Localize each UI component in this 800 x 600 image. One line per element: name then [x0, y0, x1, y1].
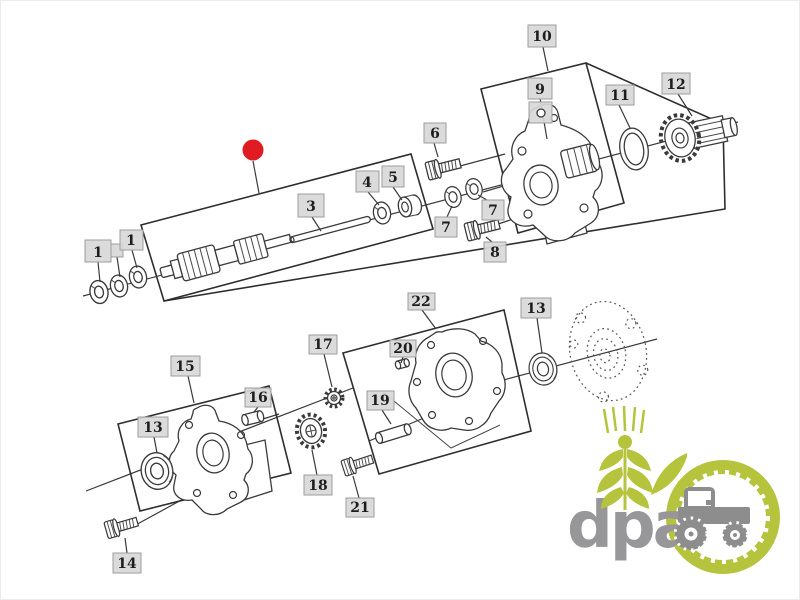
logo-text: dpa: [567, 489, 693, 563]
selected-part-marker: [243, 140, 264, 194]
pump-housing-10: [501, 104, 602, 244]
callout-19: 19: [367, 391, 394, 424]
svg-text:15: 15: [175, 359, 194, 375]
red-dot-icon: [243, 140, 264, 161]
callout-7b: 7: [478, 195, 504, 220]
bolt-14: [104, 513, 140, 539]
svg-text:21: 21: [350, 500, 369, 516]
dpa-logo: dpa: [567, 406, 773, 567]
bearing-13-right: [526, 350, 560, 387]
svg-text:14: 14: [117, 556, 137, 572]
callout-1b: 1: [120, 230, 143, 268]
parts-diagram-page: 1 1 3 4 5 6: [0, 0, 800, 600]
pin-19: [374, 423, 412, 444]
exploded-parts-diagram: 1 1 3 4 5 6: [1, 1, 800, 600]
callout-11: 11: [606, 85, 634, 128]
pto-shaft: [157, 225, 294, 287]
svg-text:13: 13: [143, 420, 162, 436]
gear-17: [326, 390, 343, 407]
callout-10: 10: [528, 25, 556, 71]
svg-text:1: 1: [93, 245, 103, 261]
bolt-21: [341, 451, 375, 477]
svg-text:20: 20: [393, 341, 413, 357]
svg-text:9: 9: [535, 82, 545, 98]
ball-9: [537, 109, 545, 117]
callout-14: 14: [113, 538, 141, 573]
callout-8: 8: [484, 237, 506, 262]
callout-22: 22: [408, 293, 436, 329]
washer-4: [371, 200, 392, 225]
callout-13-left: 13: [138, 417, 168, 453]
callout-15: 15: [171, 356, 200, 403]
svg-text:7: 7: [488, 203, 498, 219]
svg-text:19: 19: [370, 393, 389, 409]
callout-4: 4: [356, 171, 379, 205]
svg-text:7: 7: [441, 220, 451, 236]
right-enclosure-outline: [164, 63, 725, 301]
callout-21: 21: [346, 476, 374, 517]
flywheel-phantom: [560, 294, 655, 408]
svg-text:3: 3: [306, 199, 316, 215]
svg-text:5: 5: [388, 170, 398, 186]
svg-text:4: 4: [362, 175, 372, 191]
gear-18: [294, 412, 328, 450]
bolt-6: [425, 154, 463, 181]
shaft-rod-3: [289, 216, 371, 243]
washer-7-left: [443, 185, 463, 209]
callout-5: 5: [382, 166, 404, 200]
callout-13-right: 13: [521, 298, 551, 353]
svg-text:6: 6: [430, 126, 440, 142]
callout-1a: 1: [85, 240, 111, 282]
svg-text:13: 13: [526, 301, 545, 317]
tractor-icon: [675, 487, 750, 550]
callout-16: 16: [245, 388, 271, 412]
svg-text:8: 8: [490, 245, 500, 261]
svg-text:1: 1: [126, 233, 136, 249]
svg-text:12: 12: [666, 77, 685, 93]
callout-18: 18: [304, 450, 332, 495]
svg-text:17: 17: [313, 337, 332, 353]
callout-3: 3: [298, 194, 324, 231]
o-ring-11: [617, 126, 652, 172]
callout-17: 17: [309, 335, 337, 387]
callout-12: 12: [662, 73, 692, 116]
svg-text:11: 11: [610, 88, 629, 104]
callout-7a: 7: [435, 206, 457, 237]
svg-text:18: 18: [308, 478, 327, 494]
svg-text:22: 22: [411, 294, 430, 310]
washer-set-1: [88, 264, 149, 305]
svg-text:16: 16: [248, 390, 267, 406]
svg-text:10: 10: [532, 29, 552, 45]
callout-6: 6: [424, 123, 446, 157]
